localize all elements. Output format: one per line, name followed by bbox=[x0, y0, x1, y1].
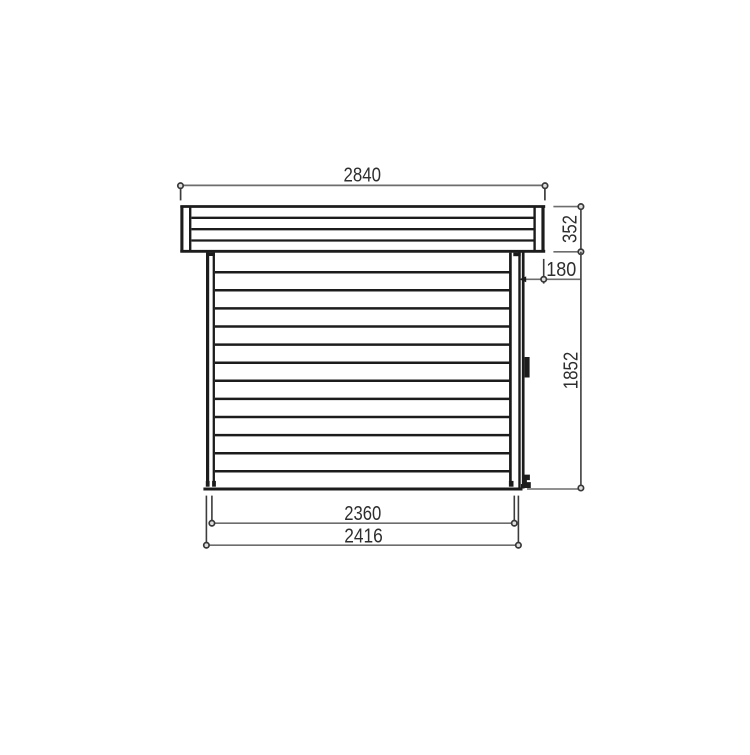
svg-text:2840: 2840 bbox=[344, 165, 382, 187]
svg-text:180: 180 bbox=[546, 259, 576, 281]
svg-text:2416: 2416 bbox=[344, 526, 383, 548]
svg-text:1852: 1852 bbox=[560, 352, 582, 390]
svg-text:352: 352 bbox=[560, 215, 582, 243]
svg-text:2360: 2360 bbox=[344, 503, 381, 525]
